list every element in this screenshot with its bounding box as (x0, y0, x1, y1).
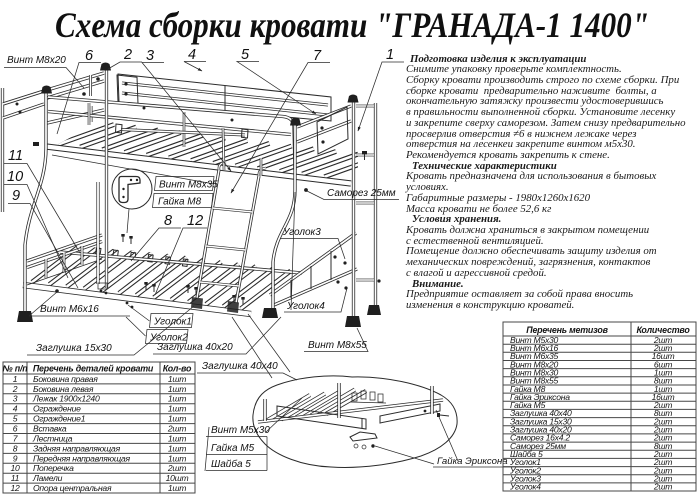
svg-text:8: 8 (164, 213, 172, 229)
svg-text:1шт: 1шт (168, 384, 186, 394)
svg-text:Вставка: Вставка (33, 424, 67, 434)
svg-text:Количество: Количество (636, 325, 690, 335)
svg-text:Шайба 5: Шайба 5 (211, 458, 251, 470)
svg-text:10: 10 (7, 169, 23, 185)
svg-text:1шт: 1шт (168, 374, 186, 384)
svg-text:Уголок3: Уголок3 (282, 227, 321, 238)
svg-text:2: 2 (12, 384, 18, 394)
svg-text:1: 1 (386, 47, 394, 63)
svg-text:10: 10 (10, 463, 20, 473)
svg-text:6: 6 (13, 424, 18, 434)
svg-text:Поперечка: Поперечка (33, 463, 74, 473)
svg-text:Гайка М5: Гайка М5 (211, 443, 255, 454)
svg-text:Уголок1: Уголок1 (153, 317, 192, 328)
svg-text:Лежак 1900х1240: Лежак 1900х1240 (32, 394, 100, 404)
svg-text:Боковина правая: Боковина правая (33, 374, 98, 384)
svg-text:3: 3 (146, 48, 154, 64)
svg-text:7: 7 (313, 48, 322, 64)
svg-text:1шт: 1шт (168, 443, 186, 453)
svg-text:Винт М6х16: Винт М6х16 (40, 304, 99, 315)
svg-text:1шт: 1шт (168, 404, 186, 414)
svg-text:1шт: 1шт (168, 433, 186, 443)
svg-text:1шт: 1шт (168, 414, 186, 424)
svg-text:5: 5 (13, 414, 18, 424)
svg-text:Уголок4: Уголок4 (509, 482, 541, 492)
svg-text:12: 12 (187, 213, 203, 229)
svg-text:Схема сборки кровати "ГРАНАДА-: Схема сборки кровати "ГРАНАДА-1 1400" (55, 5, 649, 45)
svg-text:8: 8 (13, 443, 18, 453)
svg-text:2: 2 (123, 47, 132, 63)
svg-text:Винт М8х55: Винт М8х55 (308, 340, 367, 351)
svg-text:2шт: 2шт (167, 463, 186, 473)
svg-text:Уголок4: Уголок4 (286, 301, 325, 312)
svg-text:1шт: 1шт (168, 483, 186, 493)
svg-text:Винт М8х35: Винт М8х35 (159, 180, 218, 191)
svg-text:Перечень деталей кровати: Перечень деталей кровати (33, 364, 154, 374)
svg-text:1шт: 1шт (168, 394, 186, 404)
svg-text:10шт: 10шт (166, 473, 189, 483)
svg-text:9: 9 (12, 188, 20, 204)
svg-text:Боковина левая: Боковина левая (33, 384, 94, 394)
svg-text:Перечень метизов: Перечень метизов (526, 325, 608, 335)
svg-text:5: 5 (241, 47, 250, 63)
svg-text:6: 6 (85, 48, 94, 64)
svg-text:Саморез 25мм: Саморез 25мм (327, 188, 396, 199)
svg-text:11: 11 (8, 148, 23, 164)
svg-text:9: 9 (13, 453, 18, 463)
svg-text:3: 3 (13, 394, 18, 404)
svg-text:1: 1 (13, 374, 18, 384)
svg-text:Лестница: Лестница (32, 433, 73, 443)
svg-text:Винт М5х30: Винт М5х30 (211, 425, 270, 436)
svg-text:№ п/п: № п/п (3, 364, 29, 374)
svg-text:Задняя направляющая: Задняя направляющая (33, 443, 121, 453)
svg-text:Ограждение: Ограждение (33, 404, 81, 414)
svg-text:2шт: 2шт (167, 424, 186, 434)
svg-text:2шт: 2шт (653, 482, 672, 492)
svg-text:Опора центральная: Опора центральная (33, 483, 112, 493)
svg-text:12: 12 (10, 483, 20, 493)
svg-text:Гайка М8: Гайка М8 (158, 197, 202, 208)
svg-text:4: 4 (13, 404, 18, 414)
svg-text:Гайка Эриксона: Гайка Эриксона (437, 456, 508, 467)
svg-text:Ограждение1: Ограждение1 (33, 414, 86, 424)
svg-text:4: 4 (188, 47, 196, 63)
svg-text:Заглушка 15х30: Заглушка 15х30 (36, 343, 112, 354)
svg-text:Ламели: Ламели (32, 473, 63, 483)
svg-text:Передняя направляющая: Передняя направляющая (33, 453, 131, 463)
svg-text:11: 11 (11, 473, 20, 483)
svg-text:Кол-во: Кол-во (163, 364, 192, 374)
svg-text:Винт М8х20: Винт М8х20 (7, 55, 66, 66)
svg-text:Заглушка 40х20: Заглушка 40х20 (157, 342, 233, 353)
svg-text:1шт: 1шт (168, 453, 186, 463)
